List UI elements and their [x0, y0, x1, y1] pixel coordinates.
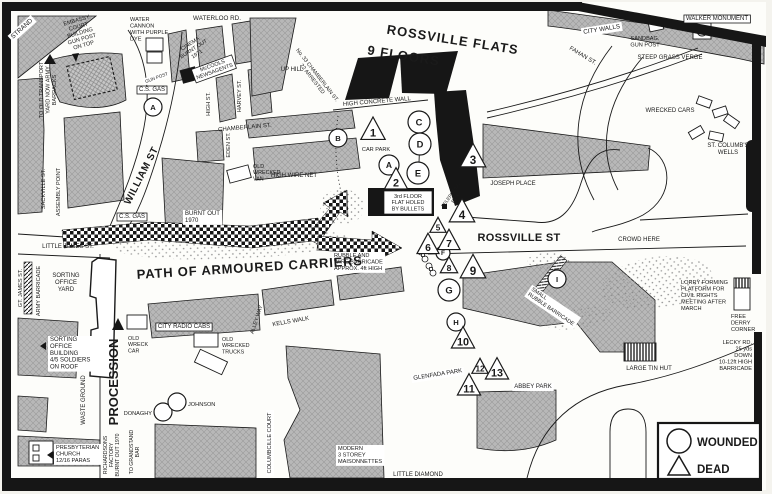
- lorry-platform-icon: [734, 278, 750, 288]
- wounded-marker-letter: F: [441, 250, 445, 257]
- wounded-marker-I: I: [548, 270, 566, 288]
- building-block: [18, 396, 48, 432]
- map-label-sackville-st: SACKVILLE ST.: [41, 169, 47, 210]
- map-label-waterloo-rd: WATERLOO RD.: [193, 15, 241, 22]
- map-label-high-wire-net: HIGH WIRE NET: [271, 173, 317, 179]
- map-label-crowd-here: CROWD HERE: [618, 237, 660, 243]
- map-label-harvey-st: HARVEY ST.: [237, 79, 243, 112]
- old-wrecked-truck-icon: [194, 333, 218, 347]
- building-block: [196, 130, 224, 162]
- wounded-marker-A: A: [144, 98, 162, 116]
- map-label-columbcille-court: COLUMBCILLE COURT: [267, 412, 273, 473]
- presbyterian-church-icon: [33, 445, 39, 451]
- water-cannon-icon: [147, 52, 162, 63]
- border-top: [2, 2, 582, 11]
- wounded-marker-B: B: [329, 129, 347, 147]
- wounded-marker-D: D: [409, 133, 431, 155]
- wounded-marker-letter: D: [417, 140, 424, 150]
- wounded-marker-letter: G: [445, 286, 452, 296]
- map-label-high-st: HIGH ST.: [206, 92, 212, 116]
- map-page: STRANDEMBASSYCOURTBUILDINGGUN POSTON TOP…: [0, 0, 772, 494]
- map-label-wrecked-cars: WRECKED CARS: [645, 108, 694, 114]
- dead-marker-number: 4: [459, 209, 466, 222]
- map-label-abbey-park: ABBEY PARK: [514, 384, 551, 390]
- map-label-waste-ground: WASTE GROUND: [81, 375, 87, 425]
- map-label-walker-monument: WALKER MONUMENT: [686, 16, 748, 22]
- presbyterian-church-icon: [33, 455, 39, 461]
- map-label-cs-gas-north: C.S. GAS: [139, 87, 165, 93]
- border-bottom: [2, 478, 762, 491]
- map-label-joseph-place: JOSEPH PLACE: [490, 181, 535, 187]
- bloody-sunday-street-map: STRANDEMBASSYCOURTBUILDINGGUN POSTON TOP…: [0, 0, 772, 494]
- wounded-marker-letter: H: [453, 318, 459, 327]
- wounded-marker-letter: C: [416, 118, 423, 128]
- map-label-procession: PROCESSION: [106, 339, 121, 426]
- army-barricade-symbol: [24, 262, 32, 314]
- dead-marker-number: 3: [470, 154, 477, 167]
- water-cannon-icon: [146, 38, 163, 51]
- wounded-circle-icon: [168, 393, 186, 411]
- dead-marker-number: 7: [446, 239, 452, 250]
- dead-marker-number: 11: [463, 383, 474, 395]
- building-block: [216, 74, 236, 122]
- wounded-marker-G: G: [438, 279, 460, 301]
- wounded-marker-letter: A: [386, 160, 392, 170]
- dead-marker-number: 2: [393, 177, 399, 189]
- dead-marker-number: 9: [470, 265, 477, 278]
- building-block: [155, 424, 256, 478]
- dead-marker-number: 13: [491, 367, 503, 379]
- building-block: [64, 112, 124, 208]
- legend-wounded-label: WOUNDED: [697, 437, 758, 449]
- old-wreck-car-icon: [127, 315, 147, 329]
- wounded-legend-icon: [667, 429, 691, 453]
- border-left: [2, 2, 11, 490]
- wounded-marker-C: C: [408, 111, 430, 133]
- map-label-steep-grass-verge: STEEP GRASS VERGE: [638, 55, 703, 61]
- wounded-marker-letter: E: [415, 169, 421, 179]
- dead-marker-number: 6: [425, 243, 431, 254]
- map-label-little-diamond: LITTLE DIAMOND: [393, 472, 443, 478]
- map-label-sandbag-gun-post: SANDBAG.GUN POST: [630, 36, 660, 48]
- map-label-cs-gas-south: C.S. GAS: [119, 214, 145, 220]
- map-label-car-park: CAR PARK: [362, 147, 390, 153]
- wounded-marker-letter: A: [150, 103, 156, 112]
- legend-dead-label: DEAD: [697, 464, 730, 476]
- map-label-rossville-st: ROSSVILLE ST: [477, 232, 560, 244]
- abbey-park-block: [477, 390, 556, 451]
- wounded-marker: [168, 393, 186, 411]
- map-label-johnson: JOHNSON: [188, 402, 215, 408]
- wounded-marker-letter: B: [335, 134, 341, 143]
- dead-marker-number: 8: [447, 263, 452, 273]
- border-notch: [746, 140, 760, 212]
- map-label-little-james-st: LITTLE JAMES ST.: [42, 244, 94, 250]
- dead-marker-number: 10: [457, 336, 469, 348]
- map-label-gt-james-st: GT. JAMES ST.: [18, 268, 24, 307]
- map-label-assembly-point: ASSEMBLY POINT: [56, 167, 62, 216]
- dead-marker-number: 12: [475, 364, 485, 373]
- map-label-army-barricade: ARMY BARRICADE: [36, 266, 42, 317]
- legend: WOUNDED DEAD: [658, 423, 760, 479]
- wounded-marker-E: E: [407, 162, 429, 184]
- map-label-third-floor-flat: 3rd FLOORFLAT HOLEDBY BULLETS: [392, 194, 425, 212]
- map-label-large-tin-hut: LARGE TIN HUT: [626, 366, 672, 372]
- dead-marker-number: 1: [370, 128, 376, 140]
- map-label-eden-st: EDEN ST.: [226, 132, 232, 158]
- map-label-donaghy: DONAGHY: [124, 411, 153, 417]
- map-label-city-radio-cabs: CITY RADIO CABS: [158, 324, 210, 330]
- large-tin-hut-icon: [624, 343, 656, 361]
- dead-marker-number: 5: [436, 223, 441, 232]
- wounded-marker-letter: I: [556, 275, 558, 284]
